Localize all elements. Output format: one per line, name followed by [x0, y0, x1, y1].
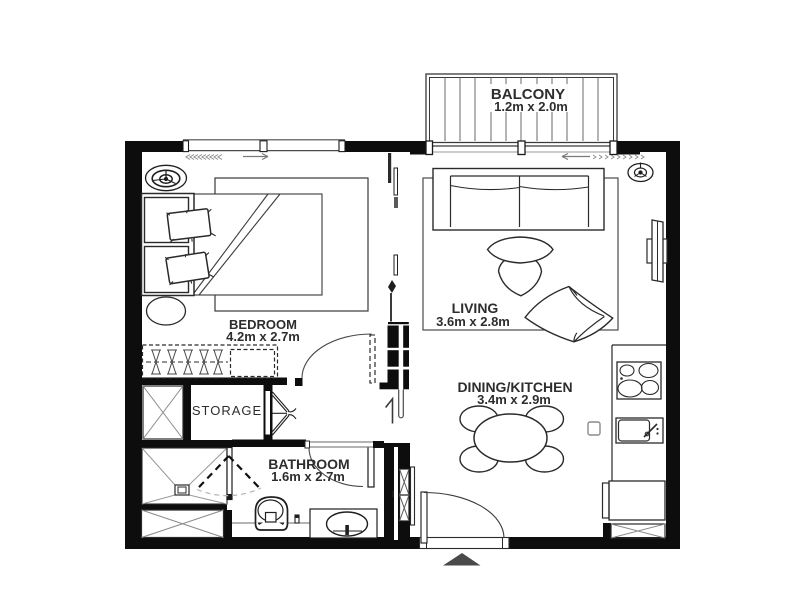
- svg-text:4.2m x 2.7m: 4.2m x 2.7m: [226, 329, 300, 344]
- svg-text:1.6m x 2.7m: 1.6m x 2.7m: [271, 469, 345, 484]
- svg-text:3.6m x 2.8m: 3.6m x 2.8m: [436, 314, 510, 329]
- svg-text:3.4m x 2.9m: 3.4m x 2.9m: [477, 392, 551, 407]
- svg-text:1.2m x 2.0m: 1.2m x 2.0m: [494, 99, 568, 114]
- svg-text:STORAGE: STORAGE: [192, 403, 262, 418]
